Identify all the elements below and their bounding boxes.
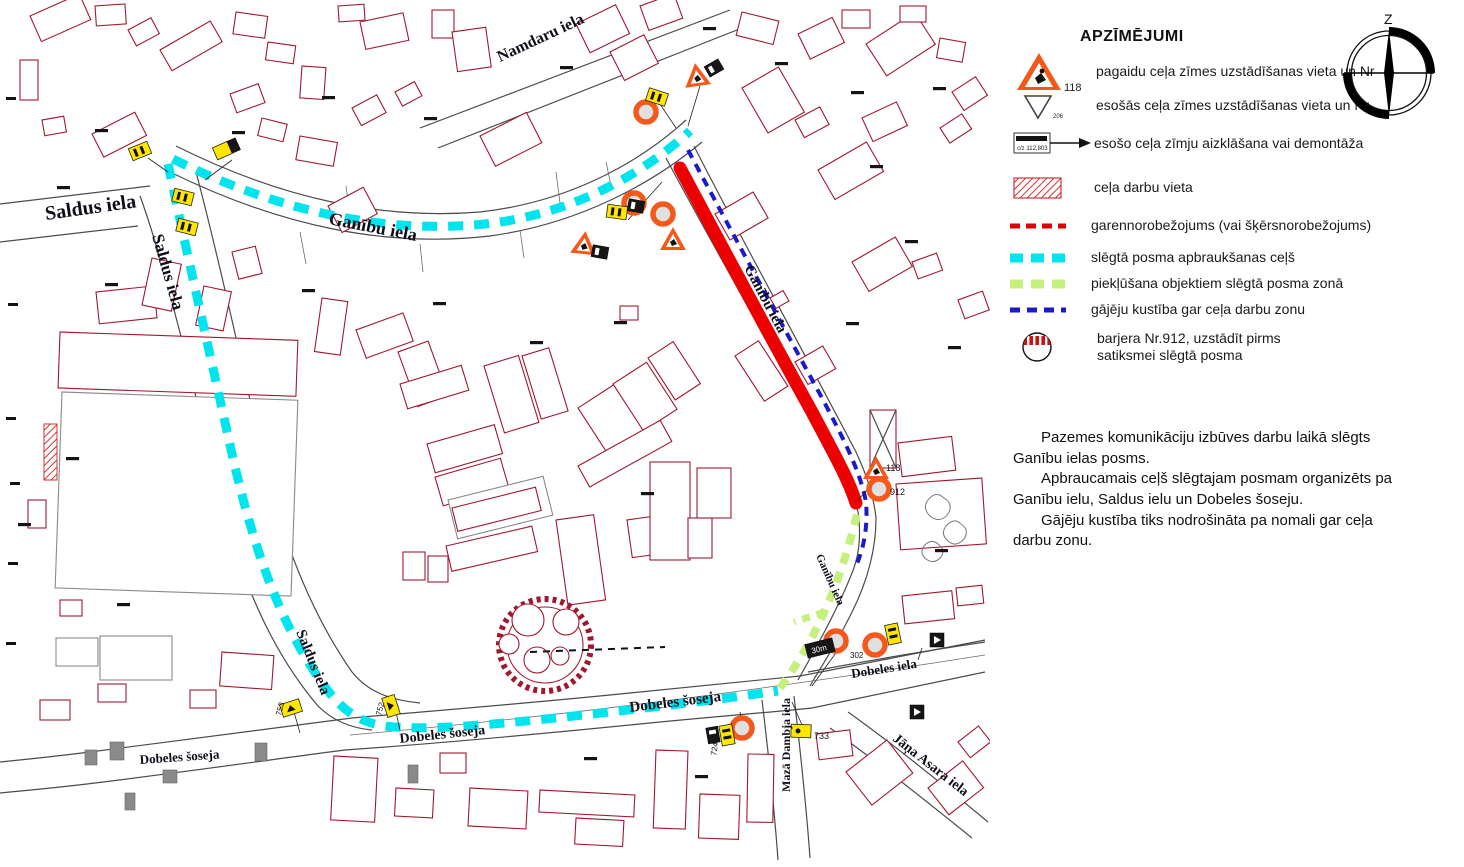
street-label-namdaru: Namdaru iela	[495, 11, 587, 66]
legend-title: APZĪMĒJUMI	[1080, 28, 1184, 46]
temporary-sign-icon: 118	[1016, 50, 1092, 94]
detour-swatch	[1008, 248, 1091, 268]
temporary-sign-icon	[660, 227, 686, 250]
description-notes: Pazemes komunikāciju izbūves darbu laikā…	[1013, 428, 1409, 552]
compass-north-label: Z	[1384, 11, 1393, 27]
svg-text:733: 733	[814, 731, 829, 741]
legend-item-detour: slēgtā posma apbraukšanas ceļš	[1008, 248, 1295, 268]
svg-text:724: 724	[709, 741, 720, 756]
legend-item-work-area: ceļa darbu vieta	[1013, 176, 1193, 200]
sign-number-labels: 118 912 302 733 753 752 724	[274, 463, 905, 756]
distance-sign-30m: 30m	[805, 638, 836, 658]
access-route-spur	[794, 612, 824, 622]
longitudinal-barrier-swatch	[1008, 216, 1091, 236]
svg-text:c/z 112,803: c/z 112,803	[1017, 146, 1048, 152]
pedestrian-swatch	[1008, 300, 1091, 320]
note-paragraph-1: Pazemes komunikāciju izbūves darbu laikā…	[1013, 428, 1409, 469]
street-label-saldus-v2: Saldus iela	[292, 628, 333, 698]
legend-item-temporary-sign: 118 pagaidu ceļa zīmes uzstādīšanas viet…	[1016, 50, 1375, 94]
note-paragraph-2: Apbraucamais ceļš slēgtajam posmam organ…	[1013, 469, 1409, 510]
legend-item-access: piekļūšana objektiem slēgtā posma zonā	[1008, 274, 1343, 294]
traffic-scheme-map: 30m 118 912 302 733 753 752 724 Saldus i…	[0, 0, 990, 862]
street-label-dobeles-soseja-1: Dobeles šoseja	[139, 746, 220, 767]
legend-item-longitudinal: garennorobežojums (vai šķērsnorobežojums…	[1008, 216, 1371, 236]
svg-text:118: 118	[886, 463, 900, 473]
note-paragraph-3: Gājēju kustība tiks nodrošināta pa nomal…	[1013, 511, 1409, 552]
svg-text:912: 912	[890, 487, 905, 497]
compass-rose: Z	[1337, 8, 1457, 133]
sign-cover-icon: c/z 112,803	[1013, 130, 1092, 158]
svg-text:302: 302	[850, 651, 864, 660]
svg-text:206: 206	[1053, 114, 1064, 120]
legend-item-barrier: barjera Nr.912, uzstādīt pirms satiksmei…	[1020, 328, 1281, 366]
street-label-dobeles-soseja-3: Dobeles šoseja	[629, 689, 723, 716]
existing-sign-icon: 206	[1022, 92, 1092, 120]
legend-item-pedestrian: gājēju kustība gar ceļa darbu zonu	[1008, 300, 1305, 320]
tank-farm	[499, 599, 665, 691]
street-label-saldus-h: Saldus iela	[44, 190, 138, 225]
work-area-swatch	[1013, 176, 1091, 200]
access-swatch	[1008, 274, 1091, 294]
street-label-maza-dambja: Mazā Dambja iela	[779, 698, 793, 792]
barrier-912-icon	[1020, 328, 1091, 366]
legend-item-existing-sign: 206 esošās ceļa zīmes uzstādīšanas vieta…	[1022, 92, 1369, 120]
legend-item-sign-cover: c/z 112,803 esošo ceļa zīmju aizklāšana …	[1013, 130, 1363, 158]
